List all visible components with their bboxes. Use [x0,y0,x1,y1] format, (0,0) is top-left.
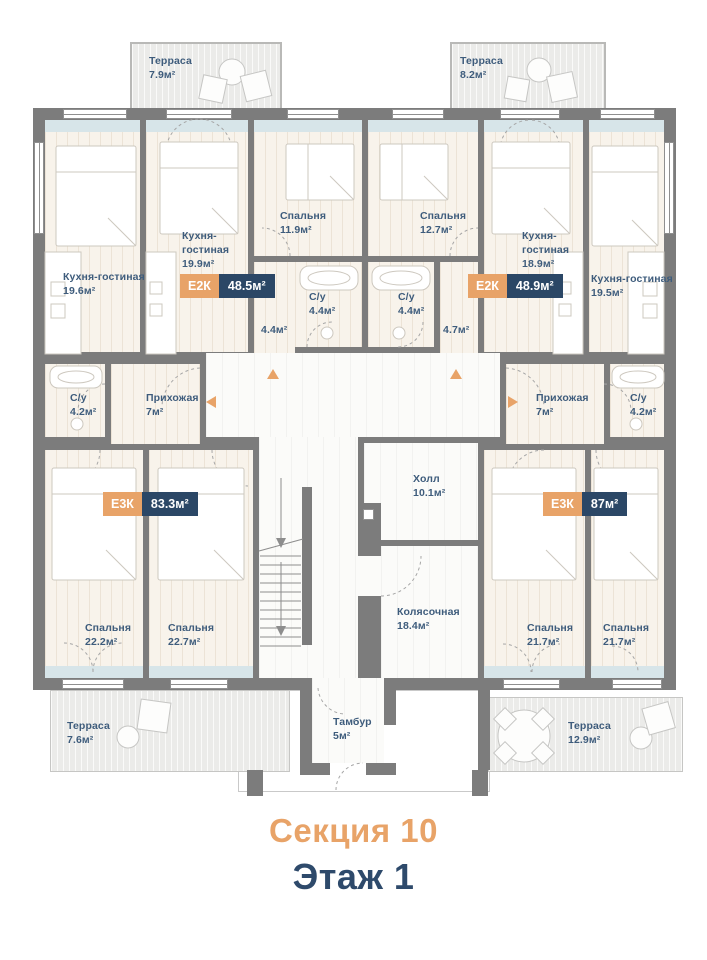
terrace-area: 8.2м² [460,69,503,83]
room-name: Колясочная [397,606,460,620]
room-area: 4.4м² [398,305,424,319]
terrace-label: Терраса 8.2м² [460,55,503,83]
floor-plan: Терраса 7.9м² Терраса 8.2м² Терраса 7.6м… [0,0,707,960]
room-area: 19.5м² [591,287,673,301]
window-sill [45,120,140,132]
room-label: Кухня-гостиная 19.5м² [591,273,673,301]
terrace-name: Терраса [460,55,503,69]
terrace-area: 7.6м² [67,734,110,748]
room-name: С/у [70,392,96,406]
room-label: Кухня-гостиная 19.9м² [182,230,244,272]
apartment-badge-e3k-83-3[interactable]: Е3К 83.3м² [103,492,198,516]
room-area: 4.4м² [309,305,335,319]
terrace-label: Терраса 7.9м² [149,55,192,83]
window [600,109,655,119]
room-name: Спальня [280,210,326,224]
room-area: 22.7м² [168,636,214,650]
apartment-type: Е2К [468,274,507,298]
tambour-wall-left [300,678,312,775]
apartment-area: 48.5м² [219,274,275,298]
terrace-name: Терраса [568,720,611,734]
room-label: Прихожая 7м² [536,392,589,420]
room-label: С/у 4.2м² [630,392,656,420]
window [34,142,44,234]
tambour-wall-bottom-left [300,763,330,775]
window-sill [591,666,664,678]
room-area: 4.2м² [630,406,656,420]
room-name: Кухня-гостиная [182,230,244,258]
window-sill [484,666,585,678]
room-label: Кухня-гостиная 19.6м² [63,271,145,299]
apartment-type: Е3К [543,492,582,516]
room-area: 4.2м² [70,406,96,420]
apartment-area: 87м² [582,492,627,516]
room-area: 11.9м² [280,224,326,238]
terrace-door-top-right [500,109,560,119]
terrace-door-top-left [166,109,232,119]
room-area: 12.7м² [420,224,466,238]
entry-arrow-left-icon [206,396,216,408]
window [612,679,662,689]
terrace-area: 12.9м² [568,734,611,748]
terrace-door-bottom-right [503,679,560,689]
window [392,109,444,119]
room-label: 4.7м² [443,324,469,338]
entry-arrow-right-icon [508,396,518,408]
room-name: С/у [398,291,424,305]
room-area: 21.7м² [603,636,649,650]
terrace-name: Терраса [67,720,110,734]
room-area: 19.6м² [63,285,145,299]
room-name: Тамбур [333,716,372,730]
terrace-door-bottom-left [62,679,124,689]
room-name: Кухня-гостиная [63,271,145,285]
terrace-label: Терраса 7.6м² [67,720,110,748]
room-label: Спальня 12.7м² [420,210,466,238]
room-area: 4.4м² [261,324,287,338]
room-name: С/у [630,392,656,406]
room-floor-kitchen-living-19-6 [45,120,140,352]
room-area: 4.7м² [443,324,469,338]
room-name: Спальня [527,622,573,636]
room-name: Кухня-гостиная [591,273,673,287]
room-label: 4.4м² [261,324,287,338]
room-label: Спальня 21.7м² [603,622,649,650]
porch-pillar-left [247,770,263,796]
plan-title: Секция 10 Этаж 1 [0,812,707,898]
entry-arrow-up-right-icon [450,369,462,379]
room-label: С/у 4.2м² [70,392,96,420]
window-sill [45,666,143,678]
porch-pillar-right [472,770,488,796]
entry-arrow-up-left-icon [267,369,279,379]
utility-shaft-hatch [363,509,374,520]
room-name: Прихожая [536,392,589,406]
room-area: 5м² [333,730,372,744]
room-area: 18.9м² [522,258,584,272]
window-sill [589,120,664,132]
floor-title: Этаж 1 [0,856,707,898]
apartment-area: 83.3м² [142,492,198,516]
room-label: С/у 4.4м² [309,291,335,319]
terrace-area: 7.9м² [149,69,192,83]
apartment-badge-e2k-48-9[interactable]: Е2К 48.9м² [468,274,563,298]
apartment-type: Е3К [103,492,142,516]
apartment-badge-e2k-48-5[interactable]: Е2К 48.5м² [180,274,275,298]
room-label: Колясочная 18.4м² [397,606,460,634]
room-name: Холл [413,473,445,487]
room-label: Спальня 22.7м² [168,622,214,650]
room-label: Спальня 21.7м² [527,622,573,650]
window [63,109,127,119]
window-sill [368,120,478,132]
room-area: 10.1м² [413,487,445,501]
room-name: Кухня-гостиная [522,230,584,258]
room-name: Спальня [85,622,131,636]
room-name: Прихожая [146,392,199,406]
terrace-label: Терраса 12.9м² [568,720,611,748]
common-hall-strip [206,353,500,437]
apartment-area: 48.9м² [507,274,563,298]
room-name: Спальня [420,210,466,224]
room-name: Спальня [603,622,649,636]
terrace-name: Терраса [149,55,192,69]
window-sill [146,120,248,132]
window-sill [149,666,253,678]
apartment-type: Е2К [180,274,219,298]
window-sill [254,120,362,132]
door-gap-stroller-room [358,556,381,596]
room-name: С/у [309,291,335,305]
room-label: Спальня 22.2м² [85,622,131,650]
room-label: Кухня-гостиная 18.9м² [522,230,584,272]
room-area: 22.2м² [85,636,131,650]
section-title: Секция 10 [0,812,707,850]
room-area: 18.4м² [397,620,460,634]
room-label: Холл 10.1м² [413,473,445,501]
room-label: Спальня 11.9м² [280,210,326,238]
window [170,679,228,689]
window-sill [484,120,583,132]
tambour-wall-bottom-right [366,763,396,775]
room-floor-kitchen-living-19-5 [589,120,664,352]
tambour-wall-right [384,678,396,725]
room-label: Прихожая 7м² [146,392,199,420]
window [287,109,339,119]
room-area: 19.9м² [182,258,244,272]
room-area: 21.7м² [527,636,573,650]
stair-inner-wall [302,487,312,645]
room-label: С/у 4.4м² [398,291,424,319]
apartment-badge-e3k-87[interactable]: Е3К 87м² [543,492,627,516]
room-name: Спальня [168,622,214,636]
wall-stub-terrace-right [478,690,490,770]
room-label: Тамбур 5м² [333,716,372,744]
room-area: 7м² [536,406,589,420]
window [664,142,674,234]
room-area: 7м² [146,406,199,420]
